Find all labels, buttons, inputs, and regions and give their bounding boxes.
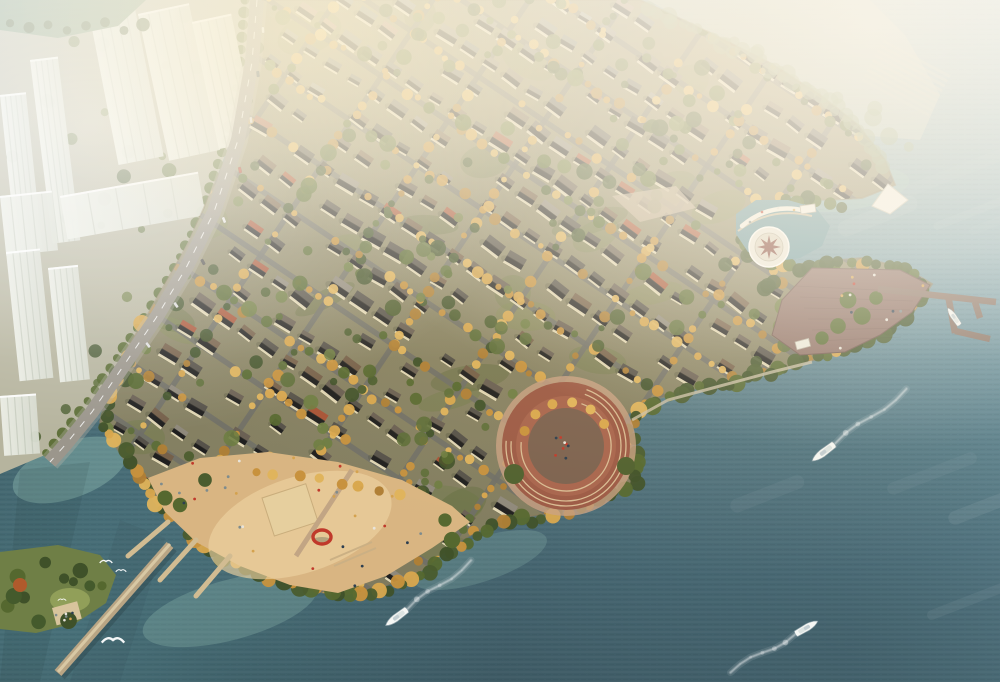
warm-light-tint	[0, 0, 1000, 682]
aerial-masterplan-rendering	[0, 0, 1000, 682]
rendering-viewport	[0, 0, 1000, 682]
atmosphere	[0, 0, 1000, 682]
